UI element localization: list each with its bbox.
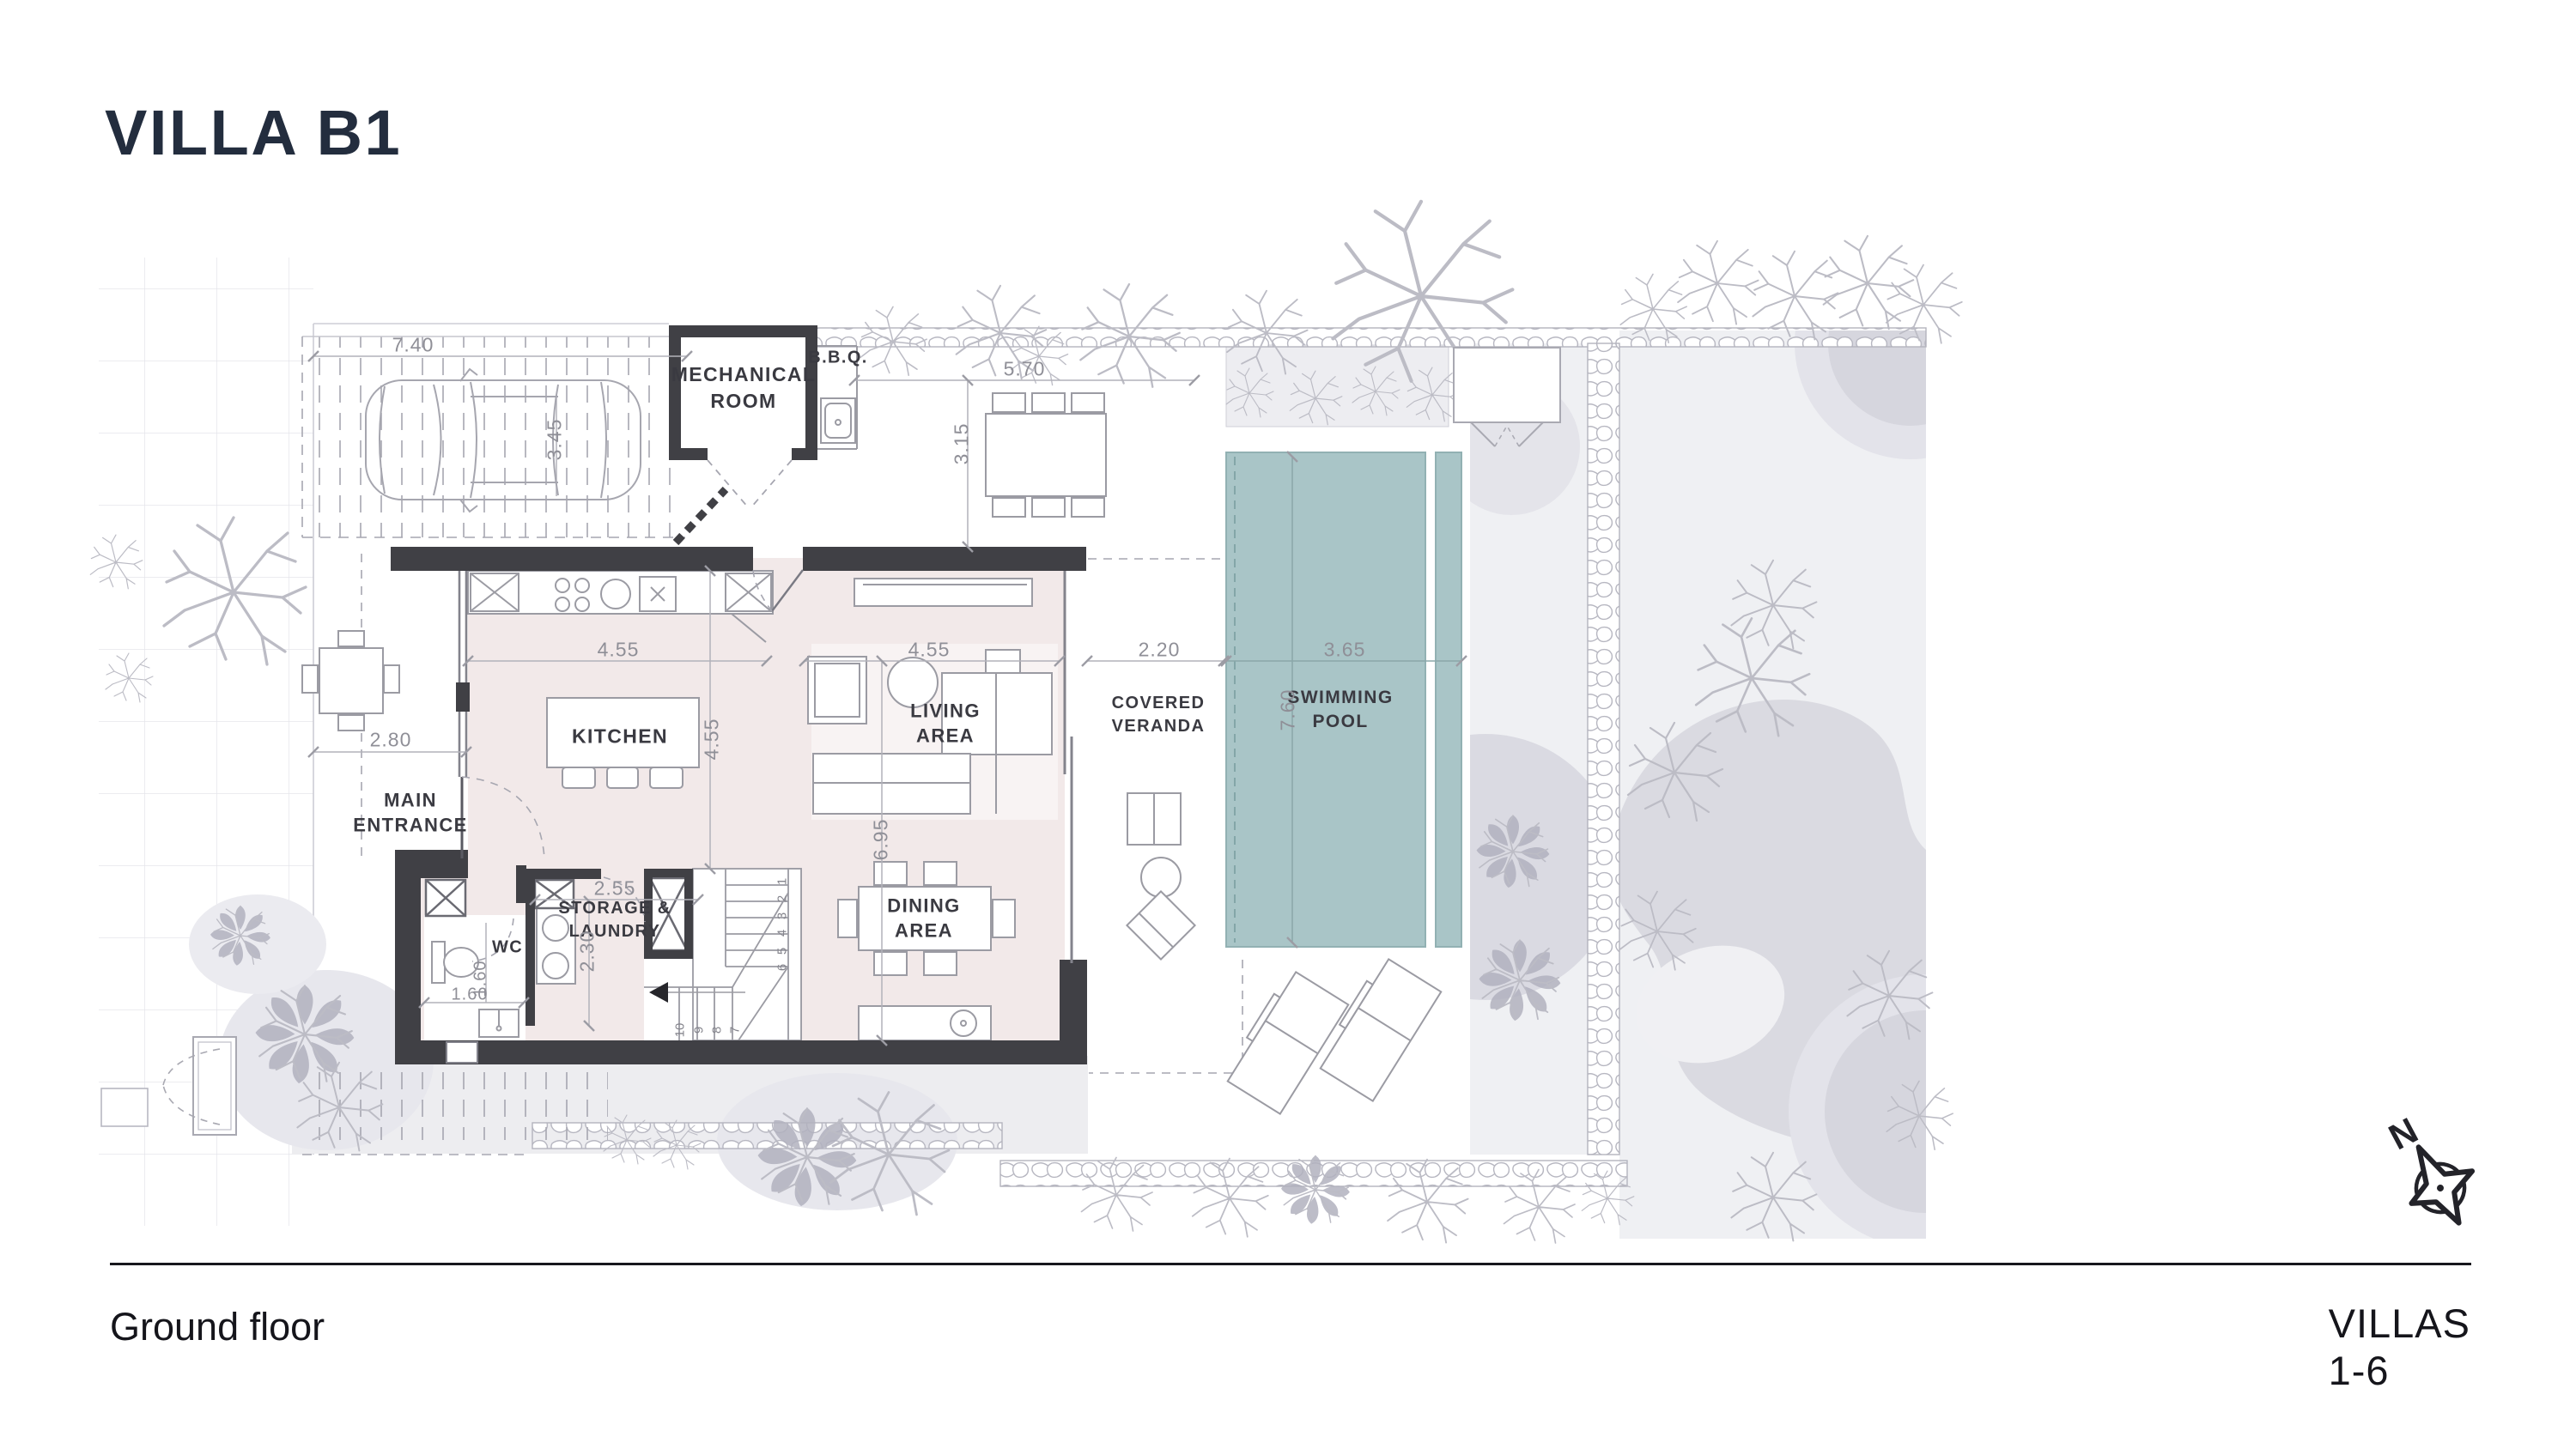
parking-hatch xyxy=(302,336,685,537)
room-label-kitchen: KITCHEN xyxy=(572,724,668,750)
stair-step-2: 2 xyxy=(775,895,790,902)
page-title: VILLA B1 xyxy=(105,96,402,169)
room-label-living: LIVING AREA xyxy=(910,699,981,749)
dim-4-55-vert: 4.55 xyxy=(701,718,724,761)
pool-overflow-strip xyxy=(1436,452,1461,947)
dim-3-15: 3.15 xyxy=(951,423,974,465)
footer-divider xyxy=(110,1263,2471,1265)
dim-2-80: 2.80 xyxy=(370,729,412,752)
stair-step-10: 10 xyxy=(673,1023,688,1038)
dim-1-60-h: 1.60 xyxy=(452,985,489,1005)
floor-name: Ground floor xyxy=(110,1305,325,1349)
dim-2-20: 2.20 xyxy=(1139,639,1181,662)
stair-step-7: 7 xyxy=(728,1027,743,1034)
dim-6-95: 6.95 xyxy=(870,819,893,861)
stair-step-5: 5 xyxy=(775,948,790,955)
dim-2-30: 2.30 xyxy=(576,931,599,973)
page: VILLA B1 MECHANICAL ROOM B.B.Q. KITCHEN … xyxy=(0,0,2576,1449)
stair-step-6: 6 xyxy=(775,964,790,971)
room-label-veranda: COVERED VERANDA xyxy=(1112,692,1206,738)
room-label-wc: WC xyxy=(492,937,523,960)
room-label-bbq: B.B.Q. xyxy=(808,347,868,370)
stone-path xyxy=(1588,343,1619,1155)
room-label-mechanical: MECHANICAL ROOM xyxy=(671,361,817,415)
room-label-dining: DINING AREA xyxy=(887,894,960,944)
dim-4-55-kitchen: 4.55 xyxy=(598,639,640,662)
stair-step-4: 4 xyxy=(775,930,790,937)
villas-range: VILLAS 1-6 xyxy=(2329,1300,2470,1394)
dim-7-40: 7.40 xyxy=(392,334,434,357)
sun-loungers xyxy=(1222,955,1441,1114)
dim-3-45: 3.45 xyxy=(544,419,567,461)
room-label-pool: SWIMMING POOL xyxy=(1287,686,1393,734)
room-label-entrance: MAIN ENTRANCE xyxy=(353,788,467,839)
pool-house xyxy=(1454,348,1560,422)
stair-step-9: 9 xyxy=(692,1027,707,1034)
dim-7-60: 7.60 xyxy=(1277,689,1300,731)
dim-4-55-living: 4.55 xyxy=(908,639,951,662)
stair-step-3: 3 xyxy=(775,912,790,919)
stair-step-1: 1 xyxy=(775,878,790,885)
dim-2-55: 2.55 xyxy=(594,877,636,900)
dim-5-70: 5.70 xyxy=(1004,358,1046,381)
dim-3-65: 3.65 xyxy=(1324,639,1366,662)
stone-wall-top xyxy=(816,328,1926,347)
stair-step-8: 8 xyxy=(710,1027,725,1034)
